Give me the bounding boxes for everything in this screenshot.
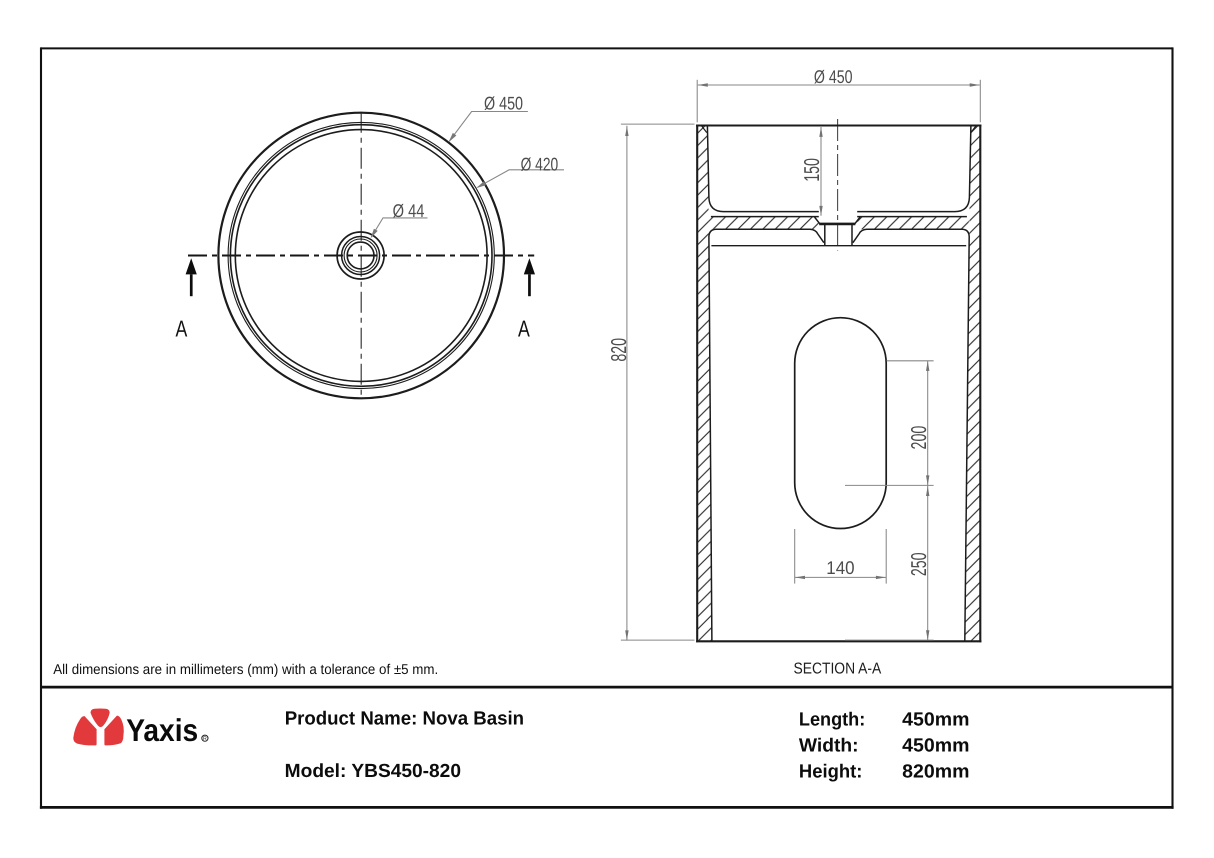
svg-text:Ø 450: Ø 450: [484, 93, 523, 114]
svg-text:A: A: [176, 315, 188, 341]
svg-text:Length:: Length:: [799, 710, 865, 731]
svg-text:All dimensions are in millimet: All dimensions are in millimeters (mm) w…: [53, 662, 438, 678]
svg-text:450mm: 450mm: [902, 736, 969, 757]
svg-text:Ø 420: Ø 420: [521, 153, 559, 174]
svg-text:Ø 44: Ø 44: [393, 200, 425, 221]
svg-text:200: 200: [907, 426, 931, 450]
svg-text:820: 820: [607, 338, 631, 362]
svg-text:R: R: [203, 736, 207, 742]
svg-text:Width:: Width:: [799, 736, 859, 757]
svg-text:Ø 450: Ø 450: [814, 66, 853, 87]
svg-text:Model: YBS450-820: Model: YBS450-820: [285, 761, 461, 782]
svg-text:150: 150: [800, 158, 824, 182]
svg-text:Yaxis: Yaxis: [126, 712, 198, 748]
svg-text:A: A: [518, 315, 530, 341]
svg-text:SECTION A-A: SECTION A-A: [794, 660, 882, 677]
svg-text:450mm: 450mm: [902, 710, 969, 731]
svg-text:Height:: Height:: [799, 762, 863, 783]
svg-text:140: 140: [826, 557, 854, 578]
svg-text:Product Name: Nova Basin: Product Name: Nova Basin: [285, 709, 524, 730]
svg-text:820mm: 820mm: [902, 762, 969, 783]
svg-text:250: 250: [907, 552, 931, 576]
